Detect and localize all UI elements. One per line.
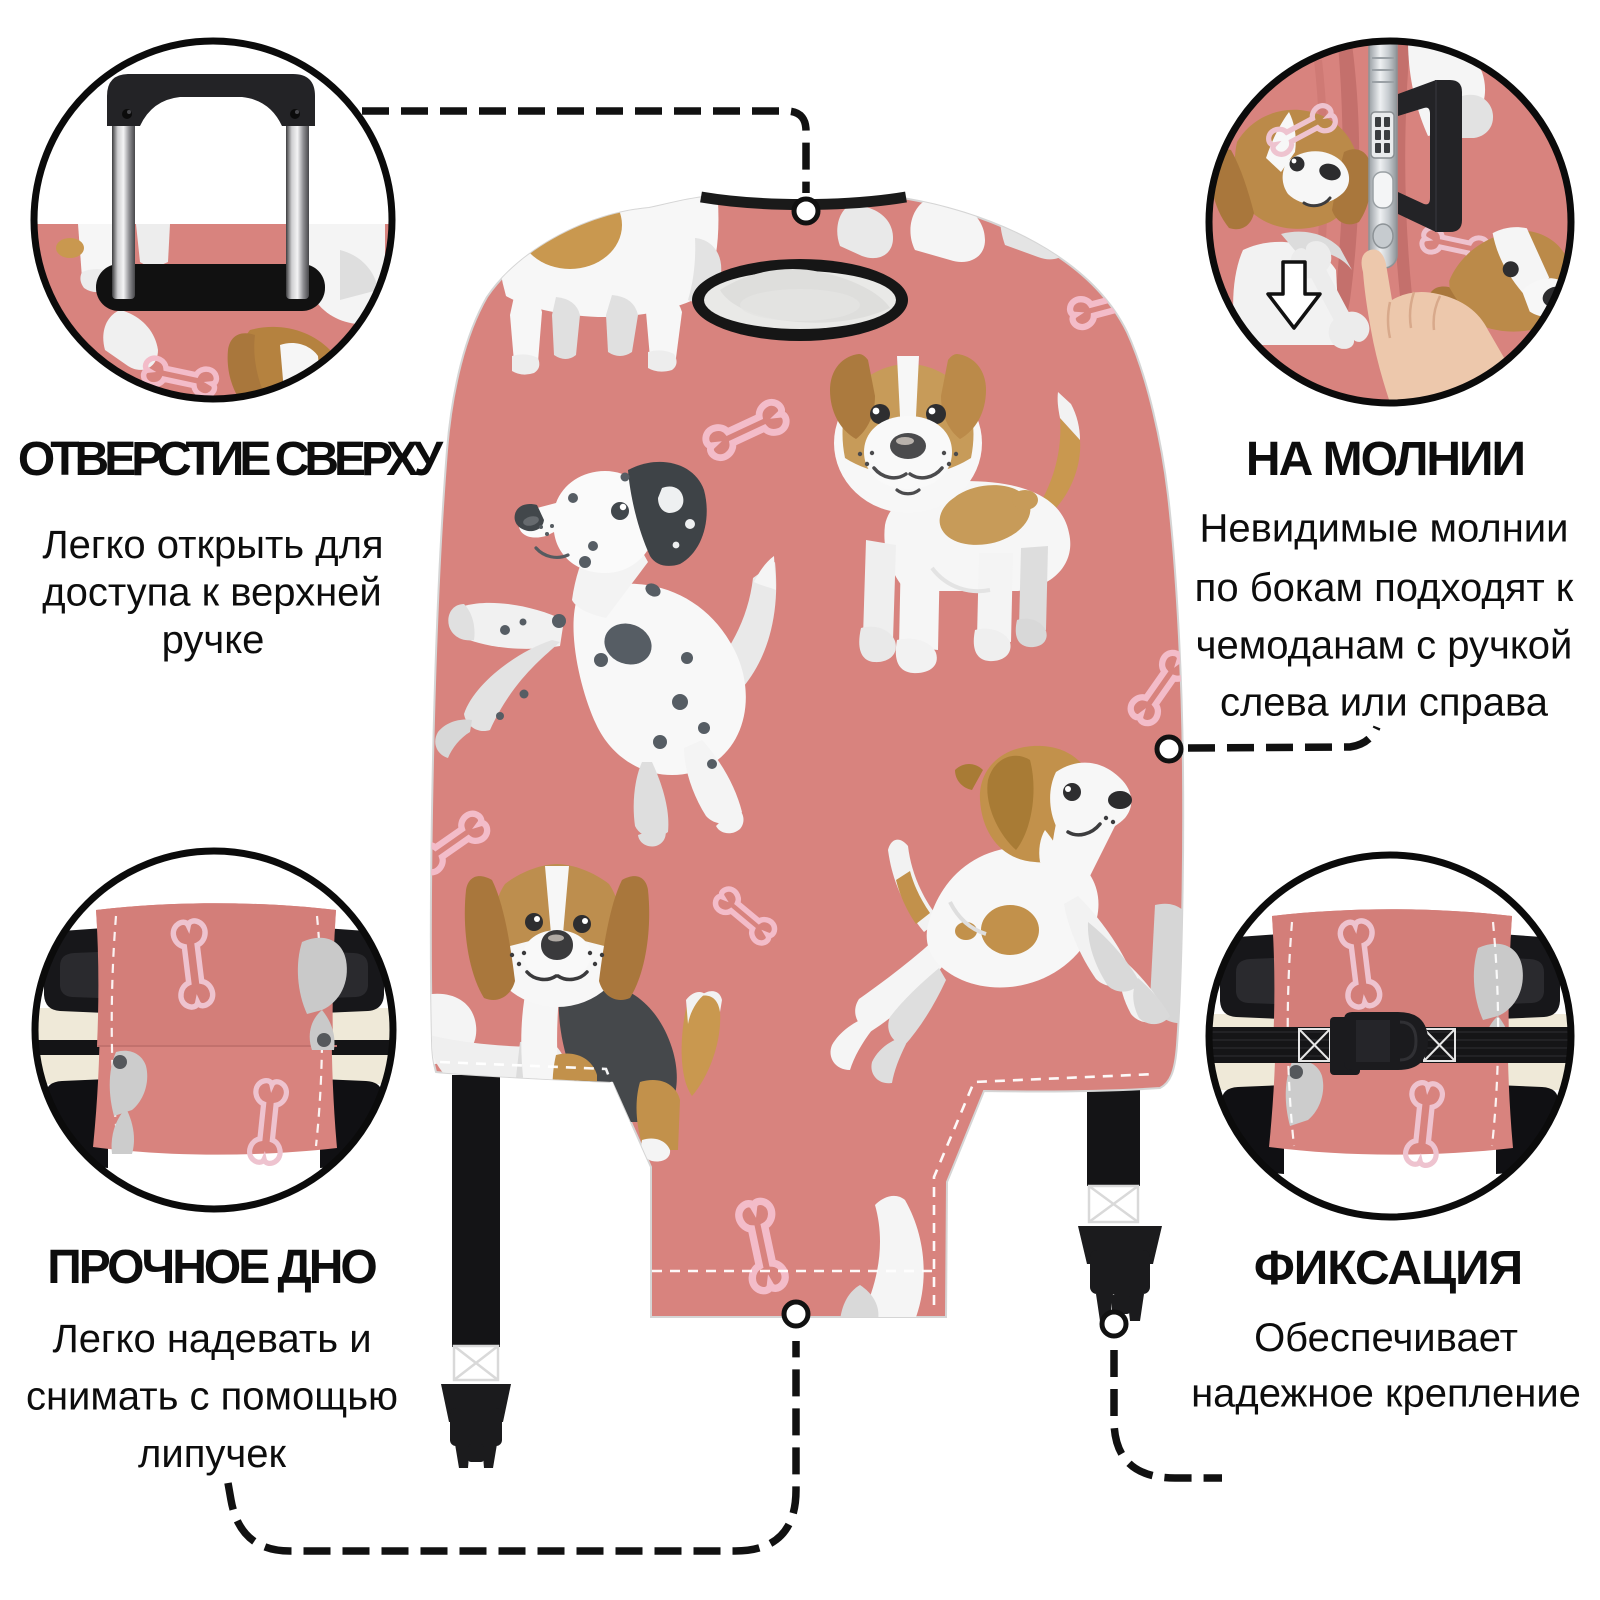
svg-text:слева или справа: слева или справа — [1220, 681, 1549, 725]
svg-text:ФИКСАЦИЯ: ФИКСАЦИЯ — [1254, 1242, 1522, 1295]
svg-text:снимать с помощью: снимать с помощью — [26, 1375, 398, 1419]
svg-text:НА МОЛНИИ: НА МОЛНИИ — [1246, 433, 1524, 486]
svg-text:Невидимые молнии: Невидимые молнии — [1199, 507, 1568, 551]
svg-text:Легко открыть для: Легко открыть для — [42, 523, 383, 567]
svg-text:ПРОЧНОЕ ДНО: ПРОЧНОЕ ДНО — [47, 1241, 376, 1294]
svg-text:ручке: ручке — [162, 618, 265, 662]
svg-text:ОТВЕРСТИЕ СВЕРХУ: ОТВЕРСТИЕ СВЕРХУ — [18, 433, 444, 486]
svg-text:по бокам подходят к: по бокам подходят к — [1195, 566, 1574, 610]
svg-text:Легко надевать и: Легко надевать и — [52, 1317, 371, 1361]
svg-text:Обеспечивает: Обеспечивает — [1254, 1316, 1518, 1360]
svg-text:липучек: липучек — [138, 1432, 286, 1476]
svg-text:надежное крепление: надежное крепление — [1191, 1372, 1581, 1416]
svg-text:чемоданам с ручкой: чемоданам с ручкой — [1196, 624, 1573, 668]
svg-text:доступа к верхней: доступа к верхней — [42, 571, 382, 615]
